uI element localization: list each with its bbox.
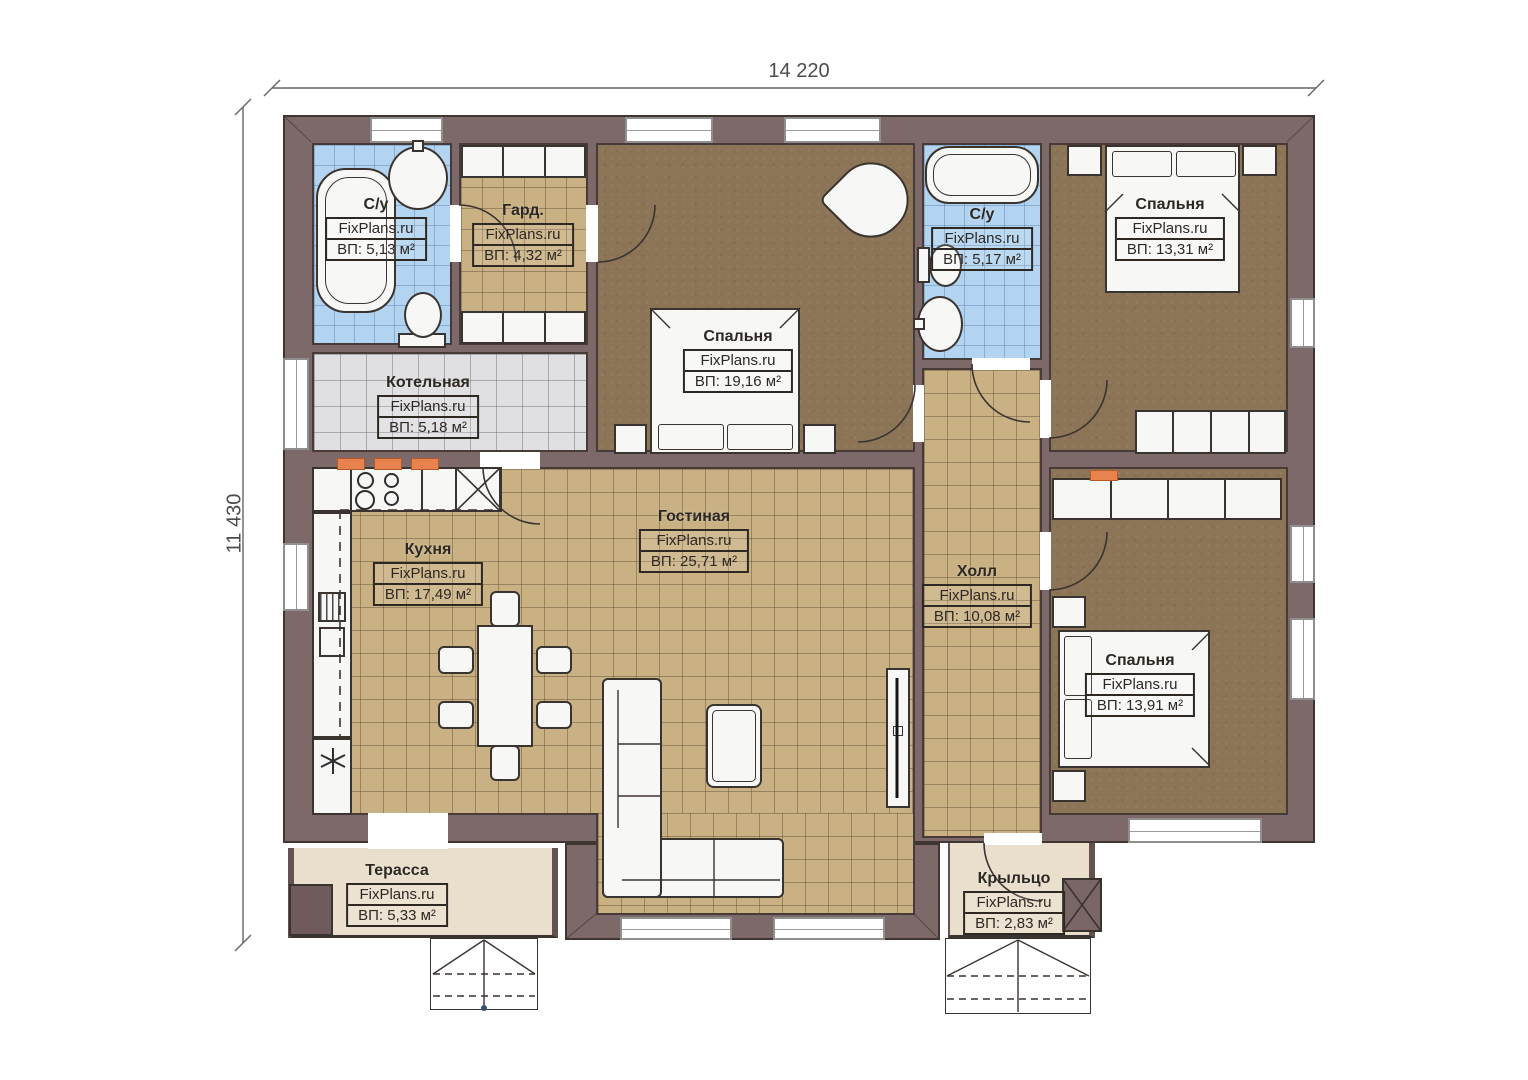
watermark: FixPlans.ru xyxy=(474,225,572,246)
room-area: ВП: 10,08 м² xyxy=(924,607,1030,626)
room-label-kitchen: Кухня FixPlans.ru ВП: 17,49 м² xyxy=(373,541,483,606)
room-name: С/у xyxy=(364,196,389,214)
kitchen-counter-left-lower xyxy=(312,738,352,815)
radiator-icon xyxy=(411,458,439,470)
room-name: Холл xyxy=(957,563,997,581)
watermark: FixPlans.ru xyxy=(379,397,477,418)
dimension-height-label: 11 430 xyxy=(224,479,247,569)
nightstand-icon xyxy=(1242,145,1277,176)
cabinet-divider xyxy=(1172,410,1174,454)
room-info-box: FixPlans.ru ВП: 4,32 м² xyxy=(472,223,574,267)
room-area: ВП: 5,13 м² xyxy=(327,240,425,259)
sofa-side-icon xyxy=(602,678,662,898)
burner-icon xyxy=(384,473,399,488)
kitchen-sink-icon xyxy=(319,627,345,657)
room-name: Спальня xyxy=(1105,652,1174,670)
chair-icon xyxy=(438,701,474,729)
room-area: ВП: 5,17 м² xyxy=(933,250,1031,269)
room-label-bedroom-middle: Спальня FixPlans.ru ВП: 19,16 м² xyxy=(683,328,793,393)
room-label-bedroom-bottom-right: Спальня FixPlans.ru ВП: 13,91 м² xyxy=(1085,652,1195,717)
chair-icon xyxy=(490,745,520,781)
door-opening xyxy=(913,385,924,442)
cabinet-divider xyxy=(1210,410,1212,454)
room-name: Кухня xyxy=(405,541,452,559)
window xyxy=(625,117,713,143)
porch-post xyxy=(1062,878,1102,932)
door-opening xyxy=(1040,532,1051,590)
door-opening xyxy=(1040,380,1051,438)
tv-bracket xyxy=(893,726,903,736)
room-info-box: FixPlans.ru ВП: 13,91 м² xyxy=(1085,673,1195,717)
cabinet-divider xyxy=(1248,410,1250,454)
nightstand-icon xyxy=(1052,596,1086,628)
pillow-icon xyxy=(1176,151,1236,177)
door-opening xyxy=(586,205,598,262)
drying-rack-icon xyxy=(318,592,346,622)
watermark: FixPlans.ru xyxy=(1087,675,1193,696)
terrace-post xyxy=(289,884,333,936)
cabinet-divider xyxy=(502,145,504,178)
dimension-width-label: 14 220 xyxy=(283,60,1315,83)
watermark: FixPlans.ru xyxy=(965,893,1063,914)
room-area: ВП: 25,71 м² xyxy=(641,552,747,571)
chair-icon xyxy=(490,591,520,627)
tv-unit-icon xyxy=(886,668,910,808)
room-name: Котельная xyxy=(386,374,470,392)
window xyxy=(1290,298,1315,348)
room-label-bath-2: С/у FixPlans.ru ВП: 5,17 м² xyxy=(931,206,1033,271)
room-area: ВП: 19,16 м² xyxy=(685,372,791,391)
room-area: ВП: 5,33 м² xyxy=(348,906,446,925)
room-area: ВП: 4,32 м² xyxy=(474,246,572,265)
watermark: FixPlans.ru xyxy=(375,564,481,585)
window xyxy=(283,358,309,450)
dining-table-icon xyxy=(477,625,533,747)
burner-icon xyxy=(355,490,375,510)
room-label-bedroom-top-right: Спальня FixPlans.ru ВП: 13,31 м² xyxy=(1115,196,1225,261)
radiator-icon xyxy=(1090,470,1118,481)
room-info-box: FixPlans.ru ВП: 5,18 м² xyxy=(377,395,479,439)
room-info-box: FixPlans.ru ВП: 5,13 м² xyxy=(325,217,427,261)
nightstand-icon xyxy=(1067,145,1102,176)
room-area: ВП: 13,31 м² xyxy=(1117,240,1223,259)
window xyxy=(1128,818,1262,843)
watermark: FixPlans.ru xyxy=(1117,219,1223,240)
watermark: FixPlans.ru xyxy=(327,219,425,240)
door-opening xyxy=(972,358,1030,370)
room-info-box: FixPlans.ru ВП: 13,31 м² xyxy=(1115,217,1225,261)
pillow-icon xyxy=(1112,151,1172,177)
entrance-door-opening xyxy=(984,833,1042,845)
room-name: Крыльцо xyxy=(978,870,1051,888)
room-name: Спальня xyxy=(703,328,772,346)
room-name: С/у xyxy=(970,206,995,224)
cabinet-divider xyxy=(544,311,546,344)
room-name: Гостиная xyxy=(658,508,730,526)
kitchen-counter-left xyxy=(312,512,352,738)
room-name: Гард. xyxy=(502,202,544,220)
window xyxy=(784,117,881,143)
bathtub-inner xyxy=(933,154,1031,196)
room-info-box: FixPlans.ru ВП: 5,33 м² xyxy=(346,883,448,927)
room-label-terrace: Терасса FixPlans.ru ВП: 5,33 м² xyxy=(346,862,448,927)
radiator-icon xyxy=(337,458,365,470)
burner-icon xyxy=(384,491,399,506)
room-area: ВП: 17,49 м² xyxy=(375,585,481,604)
window xyxy=(370,117,443,143)
nightstand-icon xyxy=(1052,770,1086,802)
door-opening xyxy=(450,205,461,262)
watermark: FixPlans.ru xyxy=(924,586,1030,607)
room-name: Терасса xyxy=(365,862,428,880)
terrace-door-opening xyxy=(368,813,448,849)
room-label-porch: Крыльцо FixPlans.ru ВП: 2,83 м² xyxy=(963,870,1065,935)
nightstand-icon xyxy=(803,424,836,454)
room-info-box: FixPlans.ru ВП: 25,71 м² xyxy=(639,529,749,573)
pillow-icon xyxy=(727,424,793,450)
watermark: FixPlans.ru xyxy=(348,885,446,906)
cabinet-x-icon xyxy=(455,467,501,512)
watermark: FixPlans.ru xyxy=(641,531,747,552)
room-label-bath-1: С/у FixPlans.ru ВП: 5,13 м² xyxy=(325,196,427,261)
room-info-box: FixPlans.ru ВП: 2,83 м² xyxy=(963,891,1065,935)
room-label-boiler-room: Котельная FixPlans.ru ВП: 5,18 м² xyxy=(377,374,479,439)
burner-icon xyxy=(357,472,374,489)
pillow-icon xyxy=(658,424,724,450)
wardrobe-cabinet-icon xyxy=(461,311,586,344)
chair-icon xyxy=(438,646,474,674)
porch-steps xyxy=(945,938,1091,1014)
toilet-icon xyxy=(404,292,442,338)
room-label-living-room: Гостиная FixPlans.ru ВП: 25,71 м² xyxy=(639,508,749,573)
coffee-table-inner xyxy=(712,710,756,782)
floor-plan: 14 220 11 430 xyxy=(0,0,1528,1080)
room-area: ВП: 2,83 м² xyxy=(965,914,1063,933)
terrace-steps xyxy=(430,938,538,1010)
window xyxy=(773,917,885,940)
room-name: Спальня xyxy=(1135,196,1204,214)
room-info-box: FixPlans.ru ВП: 19,16 м² xyxy=(683,349,793,393)
chair-icon xyxy=(536,701,572,729)
room-info-box: FixPlans.ru ВП: 10,08 м² xyxy=(922,584,1032,628)
room-info-box: FixPlans.ru ВП: 17,49 м² xyxy=(373,562,483,606)
cabinet-divider xyxy=(1224,478,1226,520)
nightstand-icon xyxy=(614,424,647,454)
faucet-icon xyxy=(913,318,925,330)
window xyxy=(283,543,309,611)
window xyxy=(620,917,732,940)
window xyxy=(1290,525,1315,583)
wardrobe-cabinet-icon xyxy=(461,145,586,178)
room-label-wardrobe: Гард. FixPlans.ru ВП: 4,32 м² xyxy=(472,202,574,267)
room-label-hall: Холл FixPlans.ru ВП: 10,08 м² xyxy=(922,563,1032,628)
cabinet-divider xyxy=(1110,478,1112,520)
room-area: ВП: 13,91 м² xyxy=(1087,696,1193,715)
faucet-icon xyxy=(412,140,424,152)
cabinet-divider xyxy=(544,145,546,178)
room-area: ВП: 5,18 м² xyxy=(379,418,477,437)
cabinet-divider xyxy=(1167,478,1169,520)
chair-icon xyxy=(536,646,572,674)
watermark: FixPlans.ru xyxy=(933,229,1031,250)
watermark: FixPlans.ru xyxy=(685,351,791,372)
window xyxy=(1290,618,1315,700)
radiator-icon xyxy=(374,458,402,470)
cabinet-divider xyxy=(502,311,504,344)
room-info-box: FixPlans.ru ВП: 5,17 м² xyxy=(931,227,1033,271)
